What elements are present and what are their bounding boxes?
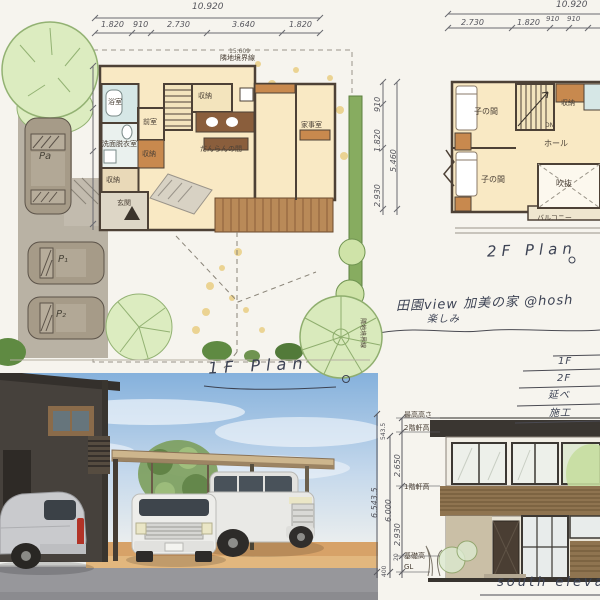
stairs-dn-label: DN: [545, 123, 554, 129]
boundary-top-label: 隣地境界線: [220, 55, 255, 62]
f2-dim-2: 1.820: [517, 19, 540, 27]
room-balcony: バルコニー: [537, 215, 572, 222]
room-storage-2f: 収納: [561, 100, 575, 107]
dim-total-height: 6.543.5: [371, 487, 379, 518]
f2-total-dim: 10.920: [556, 1, 588, 10]
area-row-2f: 2F: [557, 374, 571, 384]
f2-dim-1: 2.730: [461, 19, 484, 27]
room-kids-b: 子の間: [481, 176, 505, 184]
room-bath: 浴室: [108, 99, 122, 106]
parking-label-1: P₁: [58, 255, 68, 265]
label-max-height: 最高高さ: [404, 412, 432, 419]
room-storage-c: 収納: [106, 177, 120, 184]
dim-roof: 543.5: [381, 423, 387, 440]
f2-dim-3: 910: [546, 16, 559, 23]
room-anteroom: 前室: [143, 119, 157, 126]
dim-2650: 2.650: [394, 454, 402, 477]
label-eave-2f: 2階軒高: [404, 425, 429, 432]
drawing-sheet: 10.920 1.820 910 2.730 3.640 1.820 15.60…: [0, 0, 600, 600]
label-eave-1f: 1階軒高: [404, 484, 429, 491]
label-gl: GL: [404, 564, 413, 571]
site-rdim-1: 910: [374, 97, 382, 112]
site-dim-3: 2.730: [167, 21, 190, 29]
project-title: 田園view 加美の家 @hosh: [396, 294, 574, 313]
room-entrance: 玄関: [117, 200, 131, 207]
caption-1f-plan: 1F Plan: [208, 355, 309, 376]
area-row-1f: 1F: [558, 357, 572, 367]
dim-6000: 6.000: [385, 499, 393, 522]
caption-2f-plan: 2F Plan: [487, 241, 577, 259]
label-foundation: 基礎高: [404, 553, 425, 560]
dim-2930: 2.930: [394, 523, 402, 546]
parking-label-2: P₂: [56, 310, 66, 320]
room-kids-a: 子の間: [474, 108, 498, 116]
labels-layer: 10.920 1.820 910 2.730 3.640 1.820 15.60…: [0, 0, 600, 600]
f2-dim-4: 910: [567, 16, 580, 23]
site-dim-5: 1.820: [289, 21, 312, 29]
room-utility: 家事室: [301, 122, 322, 129]
site-rdim-total: 5.460: [390, 149, 398, 172]
parking-label-a: Pa: [39, 152, 51, 162]
room-family: だんらんの間: [200, 146, 242, 153]
site-dim-1: 1.820: [101, 21, 124, 29]
project-subtitle: 楽しみ: [427, 315, 460, 325]
room-void: 吹抜: [556, 180, 572, 188]
site-total-dim: 10.920: [192, 3, 224, 12]
room-storage-b: 収納: [142, 151, 156, 158]
room-storage-a: 収納: [198, 93, 212, 100]
site-dim-4: 3.640: [232, 21, 255, 29]
caption-south-elevation: south elevation: [497, 576, 600, 589]
boundary-right-label: 隣地境界線: [359, 318, 365, 348]
site-dim-2: 910: [133, 21, 148, 29]
site-rdim-3: 2.930: [374, 184, 382, 207]
room-washroom: 洗面脱衣室: [102, 141, 137, 148]
room-hall: ホール: [544, 140, 568, 148]
site-rdim-2: 1.820: [374, 129, 382, 152]
area-row-total: 延べ: [548, 391, 570, 401]
dim-400: 400: [382, 566, 388, 577]
area-row-construction: 施工: [549, 409, 571, 419]
dim-20: 20: [394, 553, 400, 561]
